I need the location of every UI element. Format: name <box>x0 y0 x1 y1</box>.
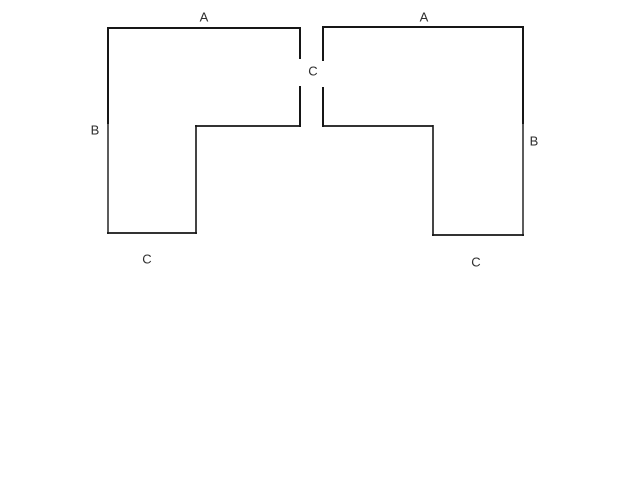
geometry-diagram: AACBBCC <box>0 0 640 480</box>
side-label-b-right: B <box>530 134 539 149</box>
side-label-c-right-bottom: C <box>471 255 480 270</box>
right-l-shape <box>322 26 524 236</box>
side-label-c-left-bottom: C <box>142 252 151 267</box>
side-label-a-right: A <box>420 10 429 25</box>
side-label-a-left: A <box>200 10 209 25</box>
left-l-shape <box>107 27 301 234</box>
side-label-b-left: B <box>91 123 100 138</box>
side-label-c-center-gap: C <box>308 64 317 79</box>
drawing-area: AACBBCC <box>0 0 640 480</box>
